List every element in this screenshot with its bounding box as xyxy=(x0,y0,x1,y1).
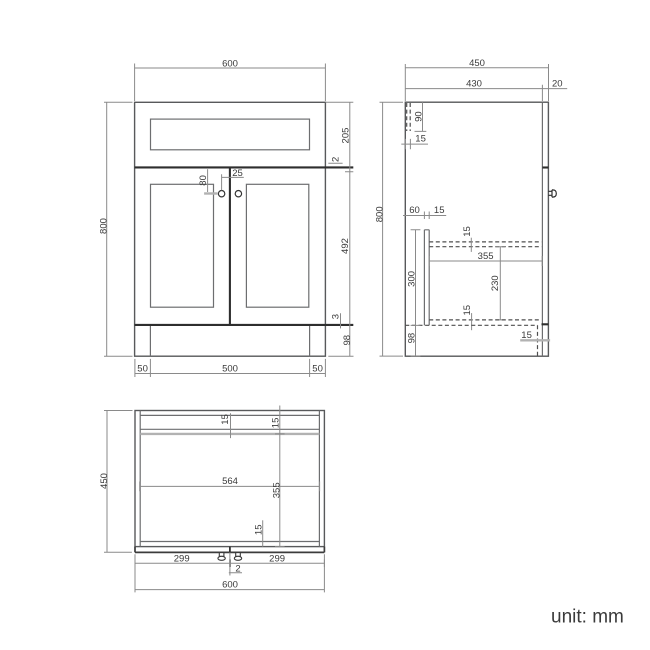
svg-text:unit: mm: unit: mm xyxy=(551,607,624,628)
svg-text:230: 230 xyxy=(490,275,501,291)
svg-text:600: 600 xyxy=(222,580,238,591)
svg-text:2: 2 xyxy=(235,564,240,575)
svg-text:450: 450 xyxy=(99,473,110,489)
svg-text:450: 450 xyxy=(469,58,485,69)
svg-text:564: 564 xyxy=(222,476,238,487)
svg-text:60: 60 xyxy=(409,205,420,216)
svg-text:98: 98 xyxy=(342,335,353,346)
svg-text:800: 800 xyxy=(99,218,110,234)
svg-text:15: 15 xyxy=(220,414,231,425)
svg-text:800: 800 xyxy=(374,206,385,222)
svg-text:355: 355 xyxy=(271,482,282,498)
svg-text:50: 50 xyxy=(137,364,148,375)
svg-text:20: 20 xyxy=(552,79,563,90)
svg-text:80: 80 xyxy=(198,175,209,186)
svg-text:15: 15 xyxy=(462,226,473,237)
svg-text:3: 3 xyxy=(330,314,341,319)
svg-text:299: 299 xyxy=(269,553,285,564)
svg-text:299: 299 xyxy=(174,553,190,564)
svg-text:430: 430 xyxy=(466,79,482,90)
svg-text:205: 205 xyxy=(340,128,351,144)
svg-text:2: 2 xyxy=(331,157,342,162)
svg-text:600: 600 xyxy=(222,58,238,69)
svg-text:15: 15 xyxy=(521,330,532,341)
svg-text:300: 300 xyxy=(407,271,418,287)
svg-text:492: 492 xyxy=(340,238,351,254)
svg-text:98: 98 xyxy=(407,333,418,344)
svg-text:15: 15 xyxy=(270,418,281,429)
svg-text:15: 15 xyxy=(434,205,445,216)
svg-text:500: 500 xyxy=(222,364,238,375)
svg-text:15: 15 xyxy=(462,305,473,316)
svg-text:15: 15 xyxy=(415,134,426,145)
svg-text:15: 15 xyxy=(253,525,264,536)
svg-text:50: 50 xyxy=(312,364,323,375)
svg-text:25: 25 xyxy=(232,168,243,179)
svg-text:355: 355 xyxy=(478,251,494,262)
svg-text:90: 90 xyxy=(413,111,424,122)
